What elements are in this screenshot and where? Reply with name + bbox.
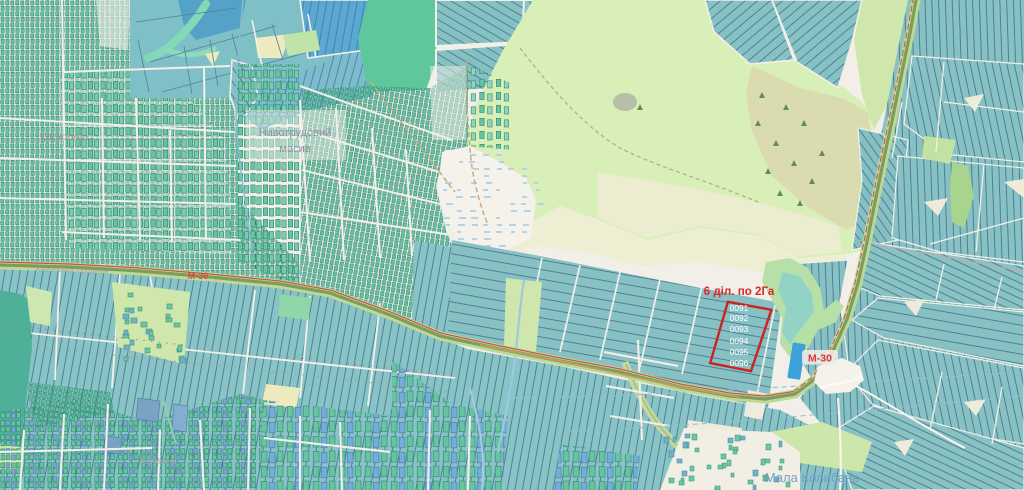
svg-text:Клекотина: Клекотина	[40, 132, 89, 143]
svg-text:0091: 0091	[730, 303, 749, 313]
svg-text:Мала Колибань: Мала Колибань	[765, 470, 860, 485]
svg-text:0096: 0096	[730, 358, 749, 368]
svg-text:6 діл. по 2Га: 6 діл. по 2Га	[704, 285, 775, 298]
svg-text:0094: 0094	[730, 336, 749, 346]
svg-text:М-30: М-30	[188, 271, 209, 281]
svg-text:Шумани: Шумани	[139, 456, 177, 467]
svg-text:0093: 0093	[730, 324, 749, 334]
svg-text:Нивотрудовий: Нивотрудовий	[259, 127, 332, 139]
svg-text:М-30: М-30	[808, 353, 832, 365]
svg-text:0095: 0095	[730, 347, 749, 357]
svg-text:0092: 0092	[730, 313, 749, 323]
svg-text:масив: масив	[279, 143, 310, 155]
